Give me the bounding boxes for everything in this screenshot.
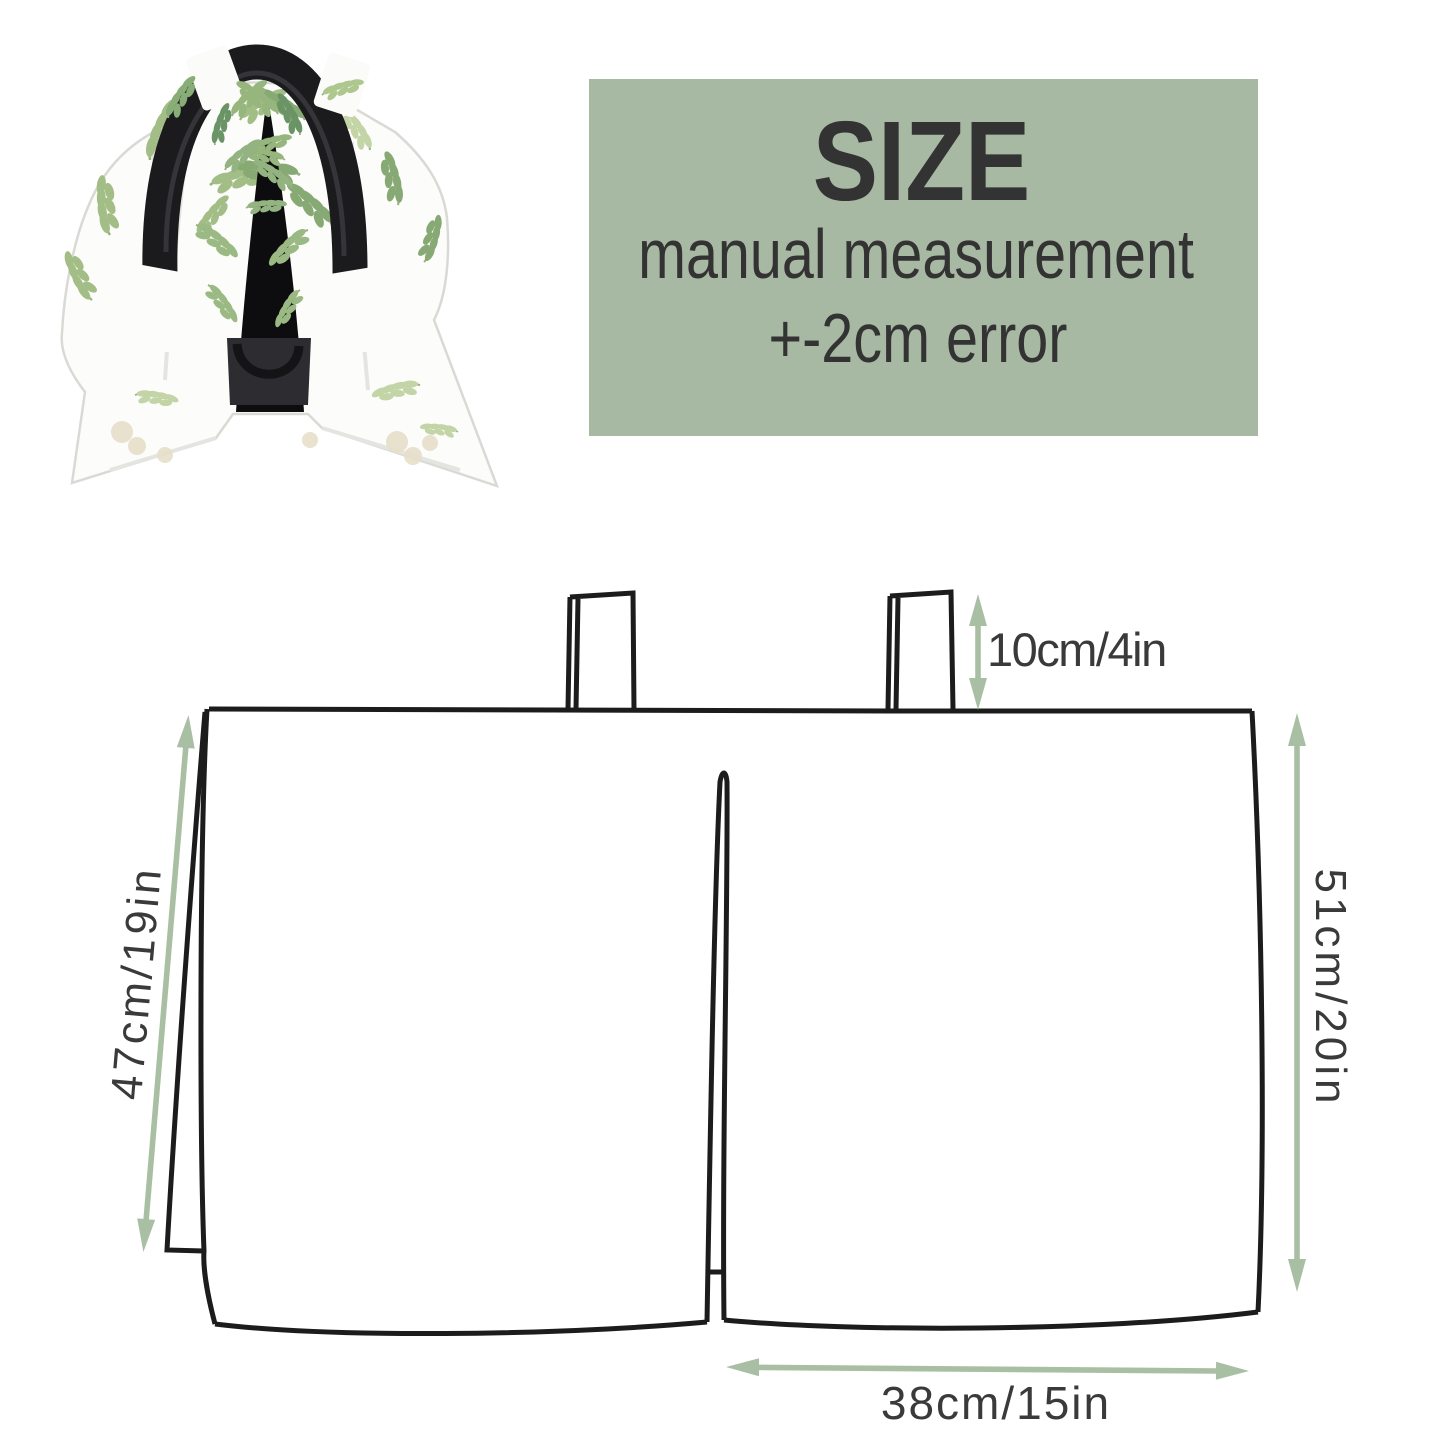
svg-text:10cm/4in: 10cm/4in <box>987 623 1166 676</box>
svg-text:51cm/20in: 51cm/20in <box>1306 868 1355 1107</box>
svg-text:38cm/15in: 38cm/15in <box>881 1377 1111 1429</box>
